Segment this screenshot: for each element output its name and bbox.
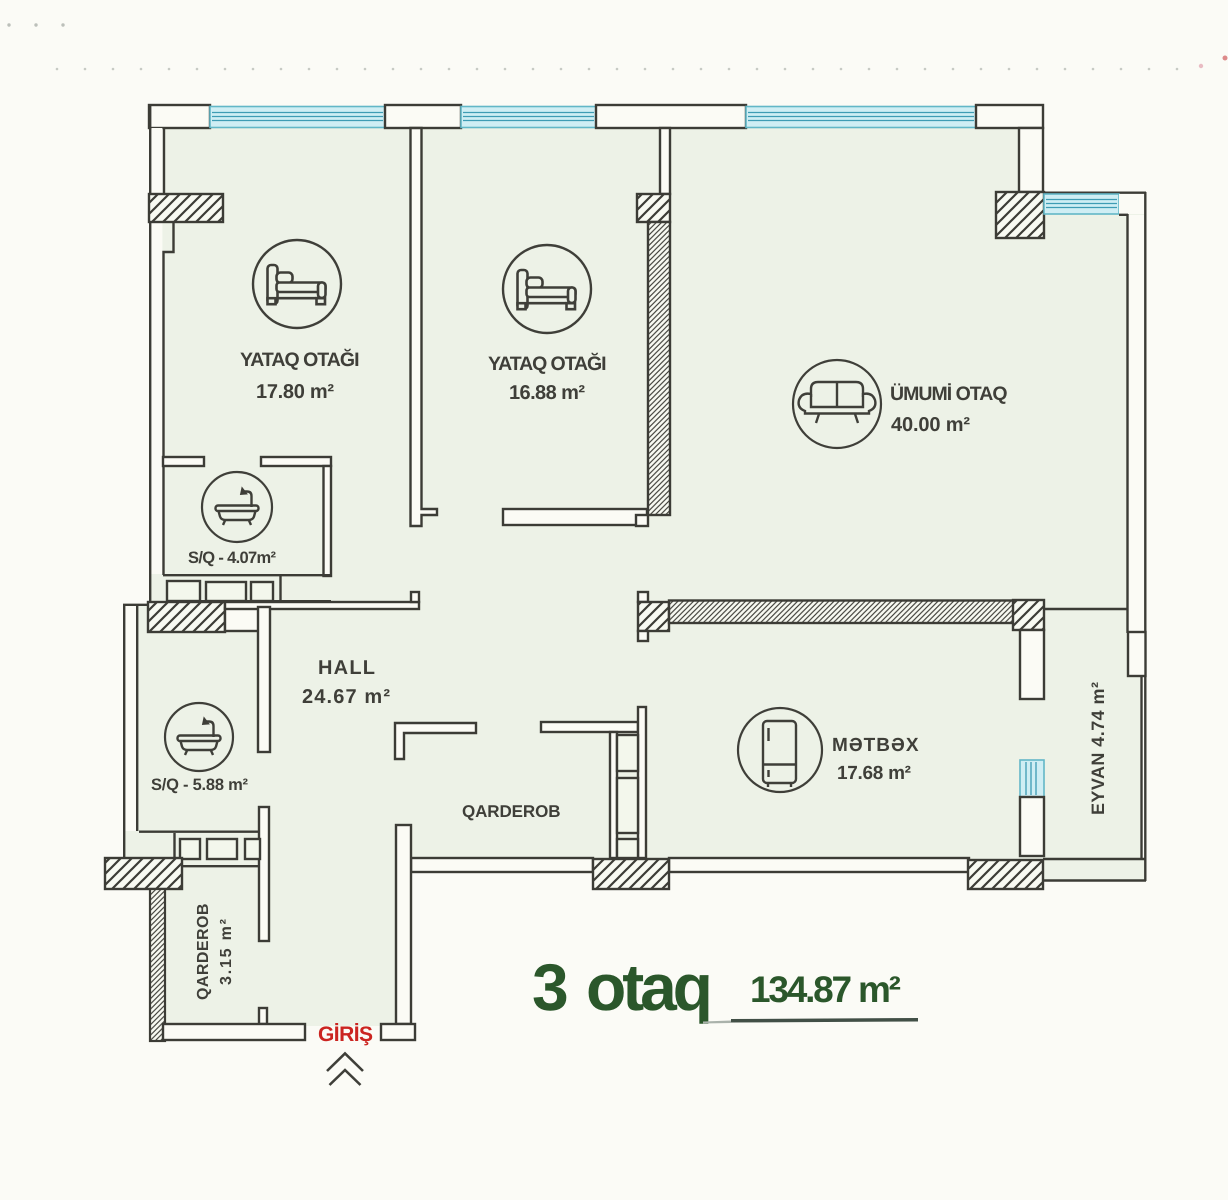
svg-text:HALL: HALL bbox=[318, 657, 375, 679]
svg-text:S/Q - 5.88 m²: S/Q - 5.88 m² bbox=[151, 776, 249, 794]
svg-text:MƏTBƏX: MƏTBƏX bbox=[832, 735, 919, 756]
svg-text:40.00 m²: 40.00 m² bbox=[891, 414, 970, 436]
svg-text:17.80 m²: 17.80 m² bbox=[256, 381, 334, 403]
svg-text:S/Q - 4.07m²: S/Q - 4.07m² bbox=[188, 549, 277, 567]
svg-text:3.15 m²: 3.15 m² bbox=[218, 919, 235, 985]
svg-text:16.88 m²: 16.88 m² bbox=[509, 382, 585, 404]
svg-text:ÜMUMİ OTAQ: ÜMUMİ OTAQ bbox=[890, 383, 1008, 405]
svg-text:YATAQ OTAĞI: YATAQ OTAĞI bbox=[488, 352, 607, 375]
svg-text:24.67 m²: 24.67 m² bbox=[302, 686, 390, 708]
svg-text:3: 3 bbox=[532, 950, 569, 1024]
svg-text:134.87 m²: 134.87 m² bbox=[750, 969, 901, 1010]
svg-text:17.68 m²: 17.68 m² bbox=[837, 763, 911, 784]
svg-text:otaq: otaq bbox=[586, 950, 713, 1024]
svg-text:QARDEROB: QARDEROB bbox=[462, 802, 561, 821]
svg-text:GİRİŞ: GİRİŞ bbox=[318, 1023, 373, 1046]
svg-text:EYVAN 4.74 m²: EYVAN 4.74 m² bbox=[1088, 682, 1108, 815]
svg-text:YATAQ OTAĞI: YATAQ OTAĞI bbox=[240, 348, 360, 371]
svg-text:QARDEROB: QARDEROB bbox=[195, 903, 212, 1000]
